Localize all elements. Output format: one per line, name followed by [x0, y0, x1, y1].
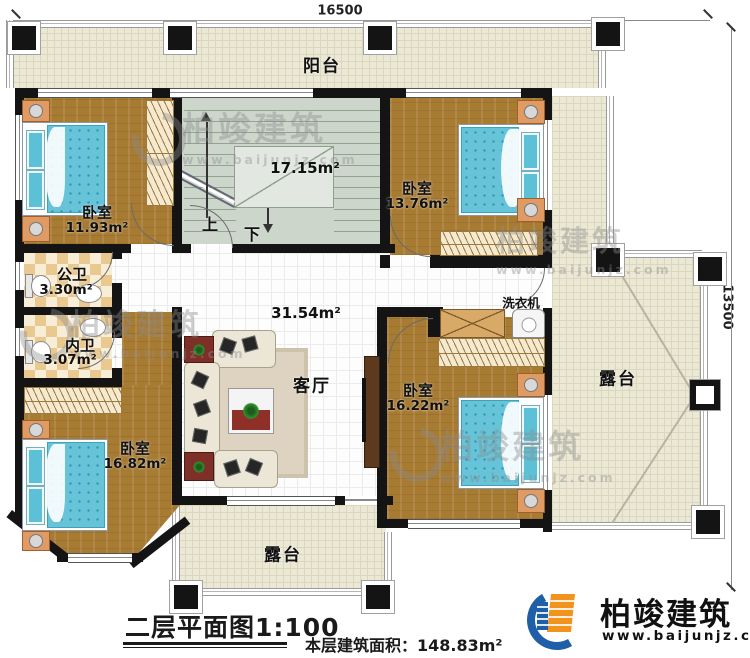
label-living: 客厅 [293, 372, 331, 397]
sliding-door [345, 499, 377, 501]
tv-cabinet [364, 356, 380, 468]
wardrobe [24, 387, 122, 414]
terrace-railing [172, 588, 392, 596]
brand-url: www.baijunjz.com [602, 628, 750, 644]
plan-title-underline [123, 647, 287, 648]
dimension-tick [11, 9, 21, 19]
column [692, 506, 724, 538]
coffee-table [228, 388, 274, 434]
nightstand [517, 100, 545, 124]
wall [377, 496, 393, 505]
window [543, 120, 552, 210]
window [15, 262, 24, 290]
nightstand [22, 100, 50, 122]
wall [112, 253, 122, 259]
stair-down-arrowhead [263, 224, 273, 233]
area-hall: 31.54m² [271, 304, 341, 322]
washing-machine [512, 309, 545, 338]
window [38, 88, 152, 98]
sofa [214, 450, 278, 488]
column [694, 253, 726, 285]
watermark: 柏竣建筑 www.baijunjz.com [182, 102, 358, 167]
wardrobe [438, 338, 545, 367]
column [164, 22, 196, 54]
area-stairs: 17.15m² [270, 159, 340, 177]
wall [15, 378, 122, 387]
balcony-door-window [170, 88, 313, 98]
area-bedroom-bl: 16.82m² [104, 456, 167, 472]
side-table [184, 452, 214, 481]
window [408, 519, 520, 529]
wall [380, 255, 390, 268]
tv [362, 378, 366, 442]
watermark: 柏竣建筑 www.baijunjz.com [440, 420, 616, 485]
area-bedroom-tl: 11.93m² [66, 220, 129, 236]
nightstand [517, 373, 545, 397]
column [362, 581, 394, 613]
wall [15, 244, 131, 253]
column [592, 18, 624, 50]
column [364, 22, 396, 54]
window [406, 88, 521, 98]
dimension-top: 16500 [317, 4, 362, 19]
laundry-counter [440, 309, 505, 338]
floor-plan: 16500 13500 [0, 0, 750, 658]
brand-logo-mark [525, 586, 589, 648]
column [8, 22, 40, 54]
label-stairs-up: 上 [202, 211, 218, 235]
label-stairs-down: 下 [244, 221, 260, 245]
column-hollow [690, 380, 720, 410]
area-bath-public: 3.30m² [39, 282, 92, 298]
bed [22, 439, 108, 531]
wall [172, 244, 191, 253]
sofa [184, 362, 220, 456]
label-terrace-right: 露台 [599, 365, 637, 390]
label-washing-machine: 洗衣机 [502, 293, 540, 312]
dimension-right: 13500 [720, 284, 735, 329]
area-bath-private: 3.07m² [43, 352, 96, 368]
dimension-right-line [731, 28, 732, 590]
area-bedroom-tr: 13.76m² [386, 196, 449, 212]
nightstand [22, 420, 50, 439]
floor-area-text: 本层建筑面积：148.83m² [305, 632, 502, 656]
bay-window [68, 553, 132, 563]
nightstand [22, 216, 50, 242]
window [227, 496, 335, 506]
plan-title-underline [123, 642, 287, 645]
stair-down-arrow [267, 208, 269, 224]
wall [380, 88, 390, 253]
dimension-tick [703, 9, 713, 19]
nightstand [517, 489, 545, 513]
label-balcony: 阳台 [303, 52, 341, 77]
nightstand [22, 531, 50, 551]
wall [232, 244, 395, 253]
wall [335, 496, 345, 505]
label-terrace-bottom: 露台 [264, 541, 302, 566]
terrace-railing [172, 505, 180, 590]
area-bedroom-br: 16.22m² [387, 398, 450, 414]
balcony-railing [10, 20, 602, 28]
watermark: 柏竣建筑 www.baijunjz.com [496, 218, 672, 277]
terrace-railing [552, 522, 704, 530]
